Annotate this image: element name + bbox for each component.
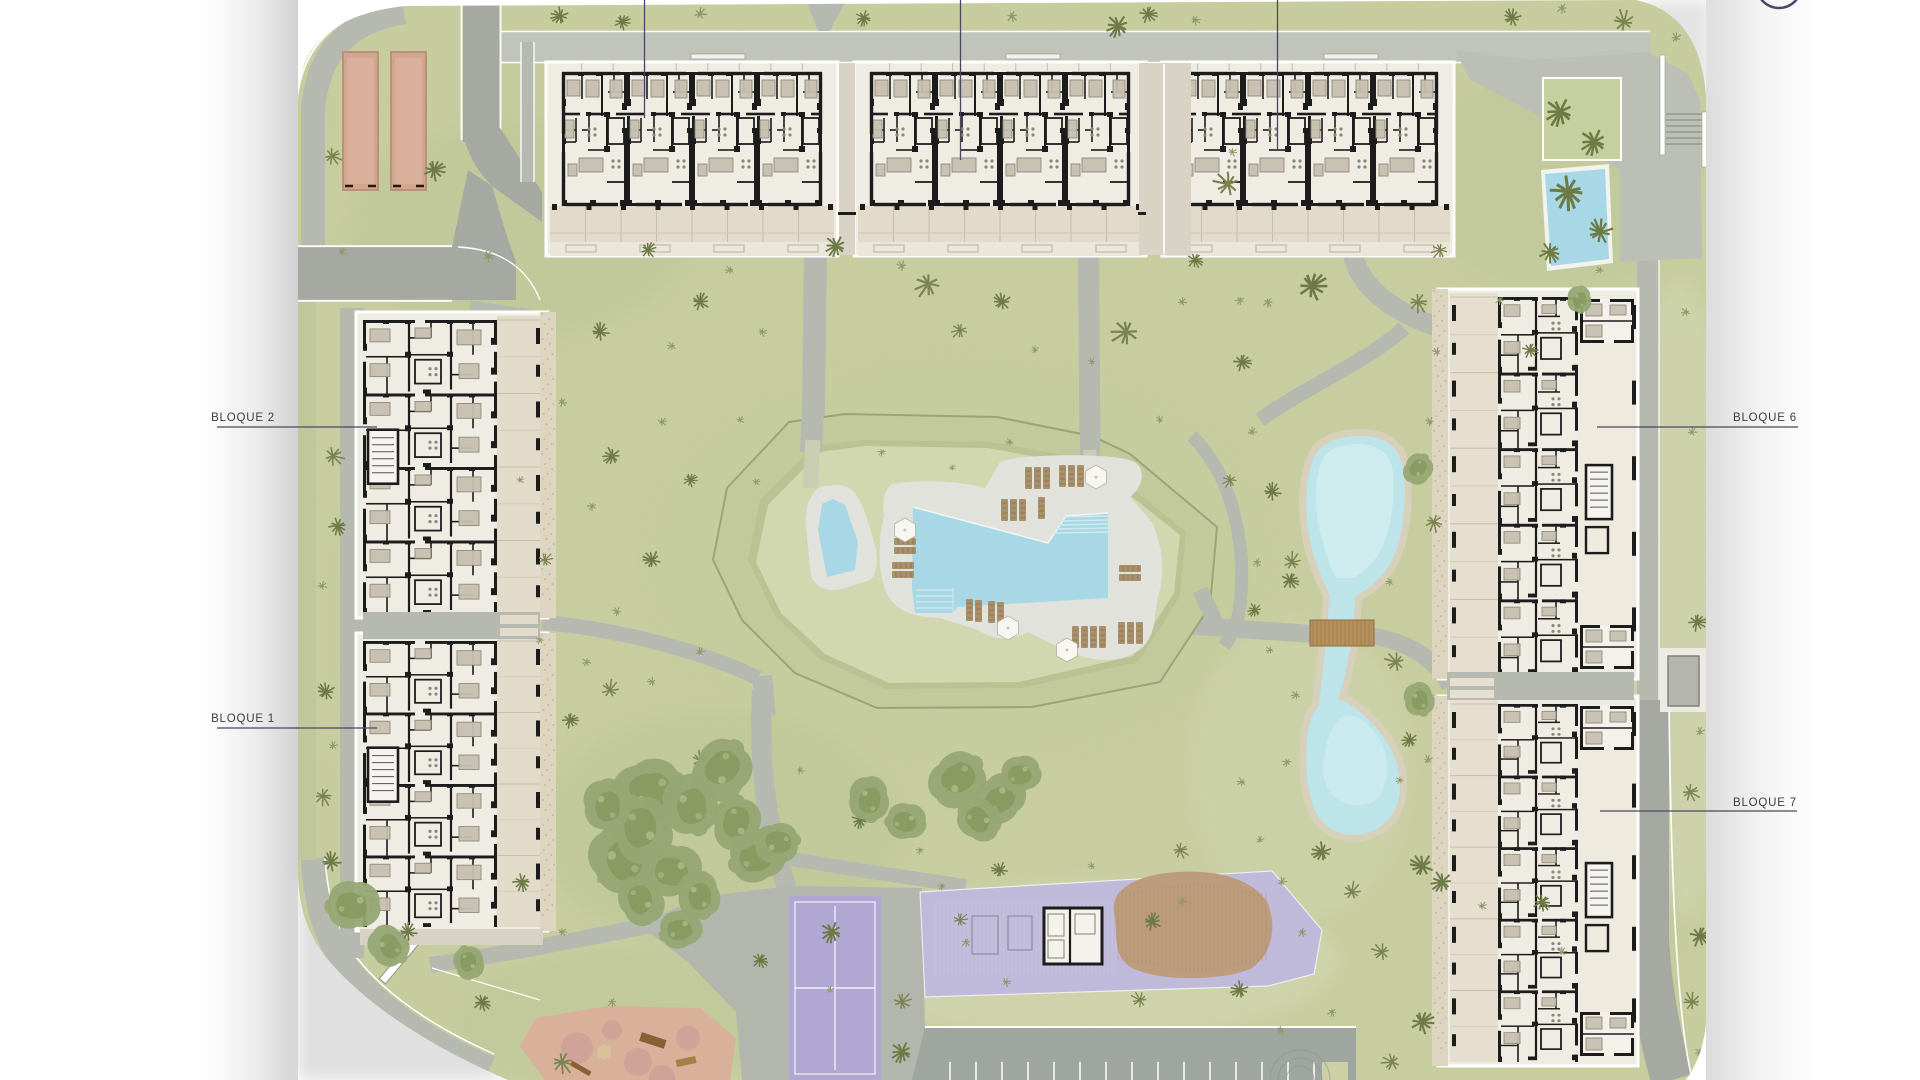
- svg-text:BLOQUE 2: BLOQUE 2: [211, 412, 275, 424]
- svg-text:BLOQUE 7: BLOQUE 7: [1733, 797, 1797, 809]
- svg-text:BLOQUE 6: BLOQUE 6: [1733, 412, 1797, 424]
- svg-text:BLOQUE 1: BLOQUE 1: [211, 713, 275, 725]
